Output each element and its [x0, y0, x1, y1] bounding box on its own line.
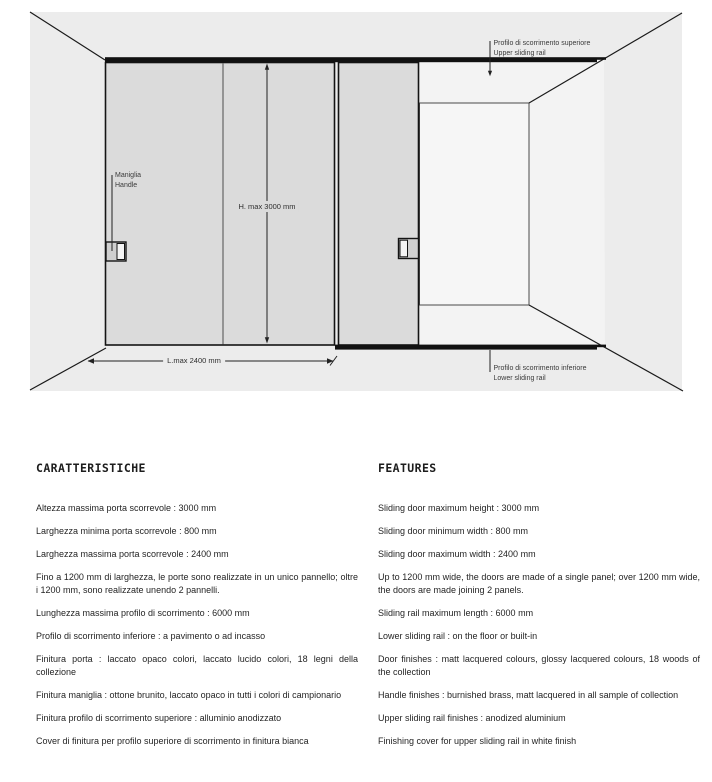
spec-item: Sliding door maximum width : 2400 mm: [378, 548, 700, 561]
opening-back-wall: [420, 103, 530, 305]
spec-item: Up to 1200 mm wide, the doors are made o…: [378, 571, 700, 597]
spec-item: Handle finishes : burnished brass, matt …: [378, 689, 700, 702]
spec-item: Upper sliding rail finishes : anodized a…: [378, 712, 700, 725]
left-door-panel: [106, 63, 335, 346]
spec-item: Finitura maniglia : ottone brunito, lacc…: [36, 689, 358, 702]
upper-rail-taper: [597, 57, 606, 60]
lower-sliding-rail: [335, 345, 597, 350]
handle-label: Maniglia Handle: [115, 171, 141, 191]
spec-item: Cover di finitura per profilo superiore …: [36, 735, 358, 748]
spec-item: Finitura porta : laccato opaco colori, l…: [36, 653, 358, 679]
spec-item: Profilo di scorrimento inferiore : a pav…: [36, 630, 358, 643]
spec-item: Sliding door minimum width : 800 mm: [378, 525, 700, 538]
max-length-dimension: L.max 2400 mm: [163, 355, 225, 366]
technical-drawing: Profilo di scorrimento superiore Upper s…: [0, 0, 712, 430]
handle-label-it: Maniglia: [115, 171, 141, 181]
features-column: FEATURES Sliding door maximum height : 3…: [378, 456, 700, 758]
caratteristiche-title: CARATTERISTICHE: [36, 461, 358, 475]
spec-item: Fino a 1200 mm di larghezza, le porte so…: [36, 571, 358, 597]
spec-item: Finishing cover for upper sliding rail i…: [378, 735, 700, 748]
spec-item: Sliding door maximum height : 3000 mm: [378, 502, 700, 515]
upper-rail-label: Profilo di scorrimento superiore Upper s…: [494, 39, 591, 59]
spec-item: Lower sliding rail : on the floor or bui…: [378, 630, 700, 643]
caratteristiche-column: CARATTERISTICHE Altezza massima porta sc…: [36, 456, 358, 758]
spec-item: Larghezza massima porta scorrevole : 240…: [36, 548, 358, 561]
spec-item: Larghezza minima porta scorrevole : 800 …: [36, 525, 358, 538]
lower-rail-label-it: Profilo di scorrimento inferiore: [494, 364, 587, 374]
spec-item: Finitura profilo di scorrimento superior…: [36, 712, 358, 725]
room-perspective-svg: [0, 0, 712, 430]
features-title: FEATURES: [378, 461, 700, 475]
upper-rail-label-it: Profilo di scorrimento superiore: [494, 39, 591, 49]
left-door-handle-icon: [106, 242, 126, 261]
spec-item: Sliding rail maximum length : 6000 mm: [378, 607, 700, 620]
right-door-handle-icon: [399, 239, 419, 259]
right-door-panel: [339, 63, 419, 346]
max-height-dimension: H. max 3000 mm: [235, 201, 298, 212]
spec-sheet-page: Profilo di scorrimento superiore Upper s…: [0, 0, 712, 782]
spec-item: Lunghezza massima profilo di scorrimento…: [36, 607, 358, 620]
opening-right-wall: [529, 60, 605, 346]
lower-rail-label: Profilo di scorrimento inferiore Lower s…: [494, 364, 587, 384]
handle-label-en: Handle: [115, 181, 141, 191]
upper-rail-label-en: Upper sliding rail: [494, 49, 591, 59]
lower-rail-label-en: Lower sliding rail: [494, 374, 587, 384]
lower-rail-taper: [597, 345, 606, 348]
spec-item: Door finishes : matt lacquered colours, …: [378, 653, 700, 679]
spec-item: Altezza massima porta scorrevole : 3000 …: [36, 502, 358, 515]
